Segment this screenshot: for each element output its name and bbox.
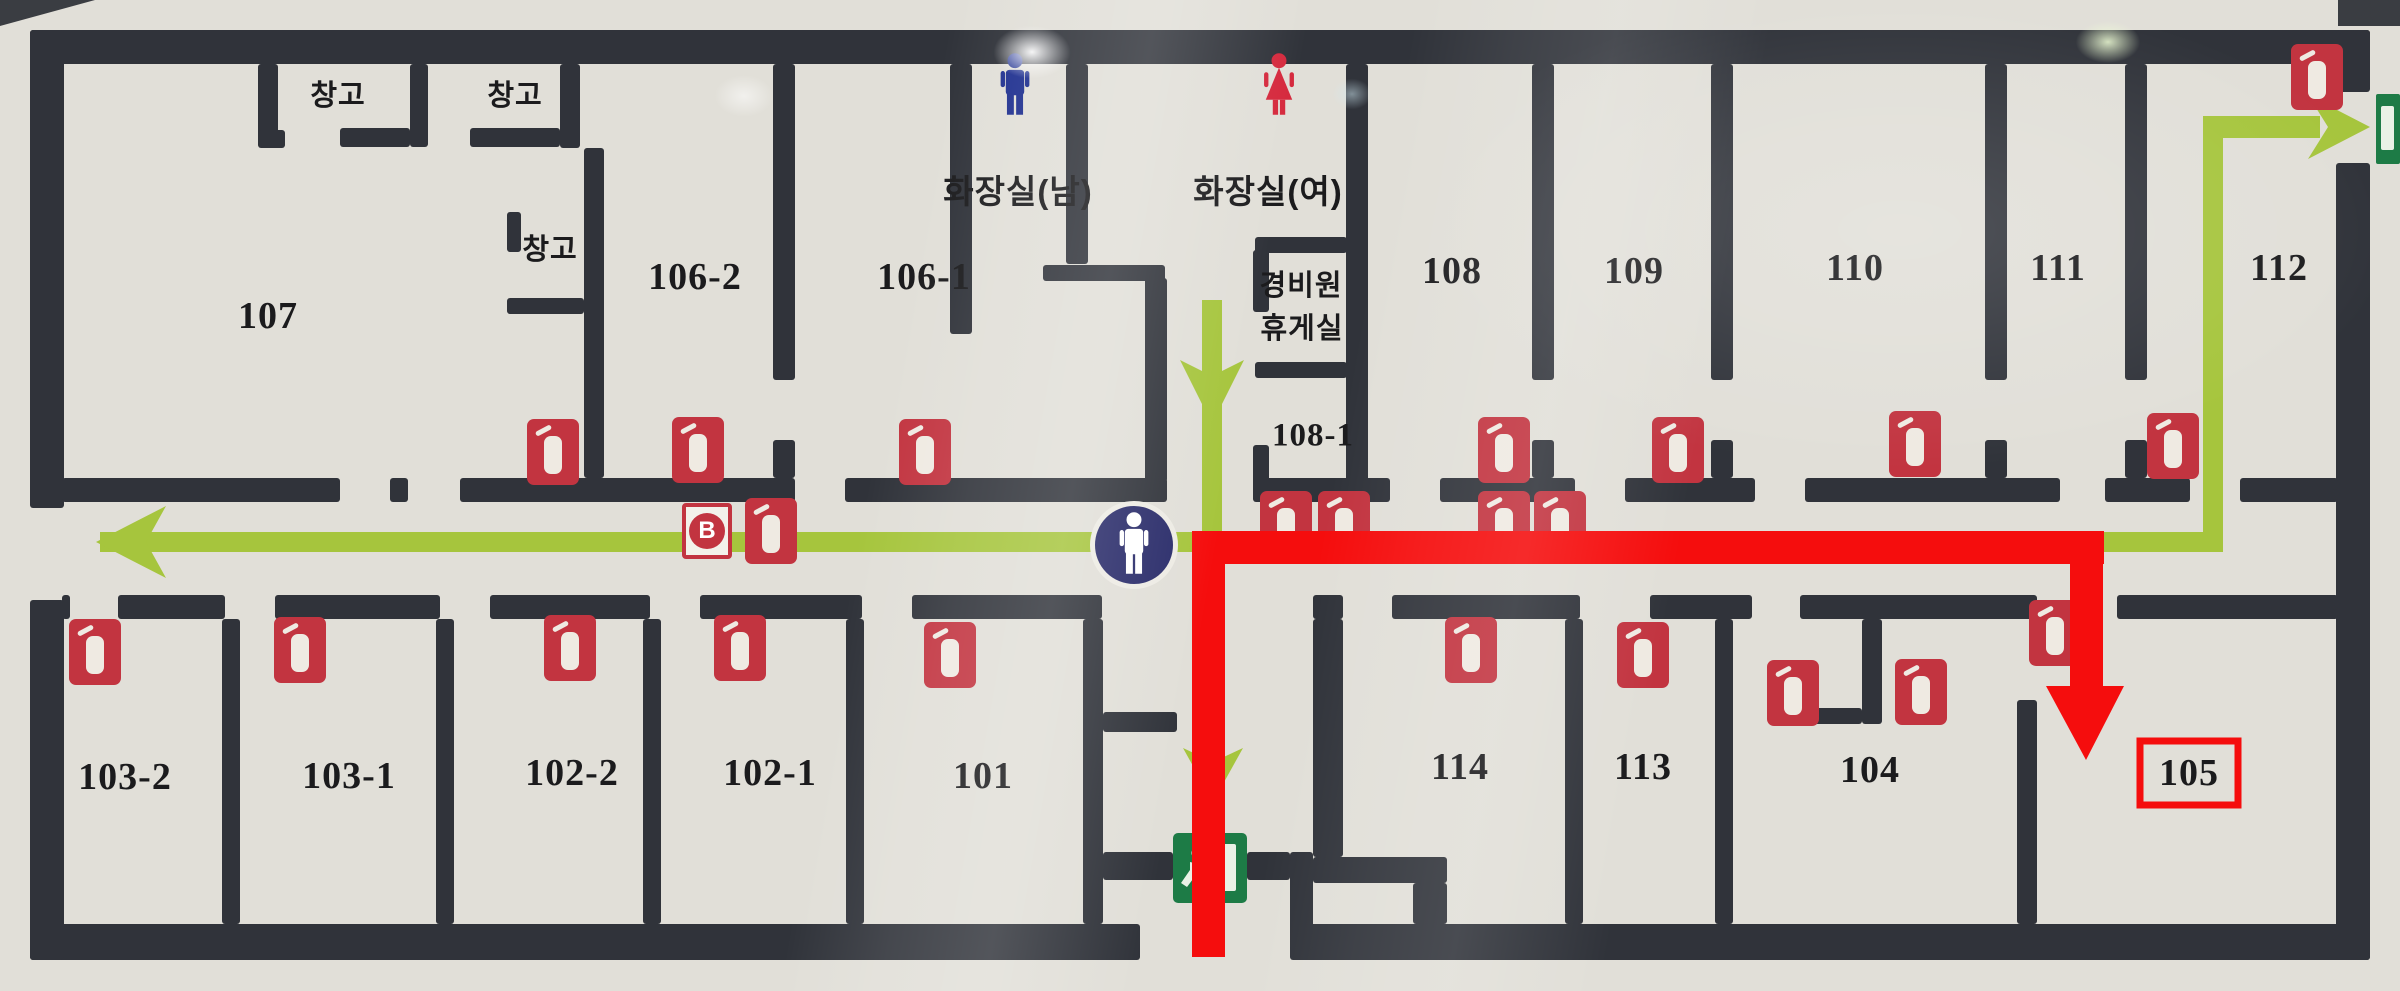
wall [1862, 619, 1882, 724]
wall [258, 64, 278, 137]
wall [584, 148, 604, 478]
wall [2017, 700, 2037, 924]
fire-extinguisher-icon [1889, 411, 1941, 477]
fire-extinguisher-icon [1617, 622, 1669, 688]
wall [2125, 64, 2147, 380]
wall [2125, 440, 2147, 478]
room-102-2-label: 102-2 [525, 751, 619, 795]
wall [1715, 619, 1733, 924]
fire-extinguisher-icon [69, 619, 121, 685]
green-route-segment [100, 532, 2212, 552]
wall [1145, 278, 1167, 482]
fire-alarm-b-marker: B [682, 503, 732, 559]
wall [30, 924, 1140, 960]
fire-extinguisher-icon [1895, 659, 1947, 725]
storage-2-label: 창고 [487, 72, 542, 114]
emergency-exit-door-icon [1173, 833, 1247, 903]
wall [30, 30, 64, 508]
fire-extinguisher-icon [1767, 660, 1819, 726]
route-to-105-red [0, 0, 2400, 991]
wall [1440, 478, 1575, 502]
wall [436, 619, 454, 924]
wall [2105, 478, 2190, 502]
wall [1985, 64, 2007, 380]
wall [470, 128, 560, 147]
fire-extinguisher-icon [1534, 491, 1586, 557]
wall [507, 212, 521, 252]
fire-extinguisher-icon [544, 615, 596, 681]
wall [1805, 478, 2060, 502]
photo-corner-artifact [0, 0, 95, 26]
wall [2336, 30, 2370, 92]
room-108-label: 108 [1422, 249, 1482, 293]
wall [2336, 163, 2370, 960]
evacuation-floorplan: 107106-2106-1108109110111112103-2103-110… [0, 0, 2400, 991]
wall [1313, 595, 1343, 619]
wall [258, 130, 285, 148]
wall [62, 478, 340, 502]
red-route-segment [1192, 531, 1225, 957]
wall [1985, 440, 2007, 478]
wall [1565, 619, 1583, 924]
fire-extinguisher-icon [745, 498, 797, 564]
green-route-segment [2203, 116, 2223, 552]
room-102-1-label: 102-1 [723, 751, 817, 795]
wall [845, 478, 1167, 502]
wall [2117, 595, 2338, 619]
guard-room-line2-label: 휴게실 [1260, 305, 1343, 347]
top-layer [0, 0, 2400, 991]
mens-restroom-label: 화장실(남) [943, 165, 1092, 213]
room-107-label: 107 [238, 294, 298, 338]
wall [1255, 362, 1347, 378]
wall [1066, 64, 1088, 264]
wall [1532, 64, 1554, 380]
wall [222, 619, 240, 924]
wall [340, 128, 410, 147]
room-106-2-label: 106-2 [648, 255, 742, 299]
wall [1043, 265, 1165, 281]
storage-3-label: 창고 [522, 226, 577, 268]
icons-layer: 107106-2106-1108109110111112103-2103-110… [0, 0, 2400, 991]
fire-extinguisher-icon [1318, 491, 1370, 557]
fire-alarm-b-letter: B [689, 513, 725, 549]
fire-extinguisher-icon [1652, 417, 1704, 483]
fire-extinguisher-icon [714, 615, 766, 681]
wall [275, 595, 440, 619]
room-112-label: 112 [2250, 246, 2308, 290]
evacuation-route-green [0, 0, 2400, 991]
wall [1532, 440, 1554, 478]
wall [410, 64, 428, 147]
room-105-label: 105 [2159, 751, 2219, 795]
wall [1083, 619, 1103, 924]
walls-layer [0, 0, 2400, 991]
room-105-highlight-box [2140, 741, 2238, 805]
room-104-label: 104 [1840, 748, 1900, 792]
red-route-segment [1192, 531, 2104, 564]
fire-extinguisher-icon [924, 622, 976, 688]
wall [912, 595, 1102, 619]
wall [1247, 852, 1290, 880]
fire-extinguisher-icon [899, 419, 951, 485]
room-109-label: 109 [1604, 249, 1664, 293]
womens-restroom-label: 화장실(여) [1193, 165, 1342, 213]
wall [507, 298, 584, 314]
mens-restroom-icon [992, 52, 1040, 132]
wall [2240, 478, 2338, 502]
wall [1290, 852, 1313, 950]
wall [1103, 712, 1177, 732]
fire-extinguisher-icon [1478, 491, 1530, 557]
wall [560, 64, 580, 148]
green-route-arrowhead [96, 506, 166, 578]
fire-extinguisher-icon [2147, 413, 2199, 479]
wall [1253, 445, 1269, 502]
room-103-2-label: 103-2 [78, 755, 172, 799]
room-108-1-label: 108-1 [1272, 418, 1354, 455]
wall [390, 478, 408, 502]
fire-extinguisher-icon [527, 419, 579, 485]
storage-1-label: 창고 [310, 72, 365, 114]
fire-extinguisher-icon [2291, 44, 2343, 110]
wall [1255, 478, 1390, 502]
green-route-arrowhead [2308, 95, 2370, 159]
wall [846, 619, 864, 924]
wall [1392, 595, 1580, 619]
photo-corner-artifact [2338, 0, 2400, 26]
wall [1711, 440, 1733, 478]
red-route-segment [2070, 560, 2103, 692]
green-route-segment [2212, 116, 2320, 138]
fire-extinguisher-icon [1445, 617, 1497, 683]
room-110-label: 110 [1826, 246, 1884, 290]
room-111-label: 111 [2030, 246, 2086, 290]
room-114-label: 114 [1431, 745, 1489, 789]
wall [30, 600, 64, 960]
wall [1290, 924, 2370, 960]
wall [1313, 857, 1447, 883]
room-101-label: 101 [953, 754, 1013, 798]
wall [30, 30, 2370, 64]
wall [1413, 883, 1447, 924]
wall [1650, 595, 1752, 619]
wall [118, 595, 225, 619]
wall [1313, 619, 1343, 857]
wall [643, 619, 661, 924]
exit-sign-top-right [2376, 94, 2400, 164]
fire-extinguisher-icon [672, 417, 724, 483]
wall [1346, 64, 1368, 502]
green-route-arrowhead [1183, 748, 1243, 802]
room-106-1-label: 106-1 [877, 255, 971, 299]
wall [460, 478, 795, 502]
wall [1790, 708, 1862, 724]
wall [950, 64, 972, 334]
green-route-arrowhead [1180, 360, 1244, 424]
room-103-1-label: 103-1 [302, 754, 396, 798]
wall [1711, 64, 1733, 380]
wall [700, 595, 862, 619]
womens-restroom-icon [1256, 52, 1304, 132]
wall [1800, 595, 2037, 619]
wall [1253, 250, 1269, 312]
wall [773, 440, 795, 478]
wall [773, 64, 795, 380]
red-route-arrowhead [2046, 686, 2124, 760]
fire-extinguisher-icon [2029, 600, 2081, 666]
guard-room-line1-label: 경비원 [1259, 262, 1342, 304]
fire-extinguisher-icon [1260, 491, 1312, 557]
room-113-label: 113 [1614, 745, 1672, 789]
current-location-person-icon [1090, 501, 1178, 589]
wall [62, 595, 70, 619]
wall [1103, 852, 1173, 880]
wall [1255, 237, 1347, 253]
fire-extinguisher-icon [1478, 417, 1530, 483]
wall [490, 595, 650, 619]
glass-reflection-overlay [0, 0, 2400, 991]
green-route-segment [1202, 300, 1222, 532]
fire-extinguisher-icon [274, 617, 326, 683]
wall [1625, 478, 1755, 502]
